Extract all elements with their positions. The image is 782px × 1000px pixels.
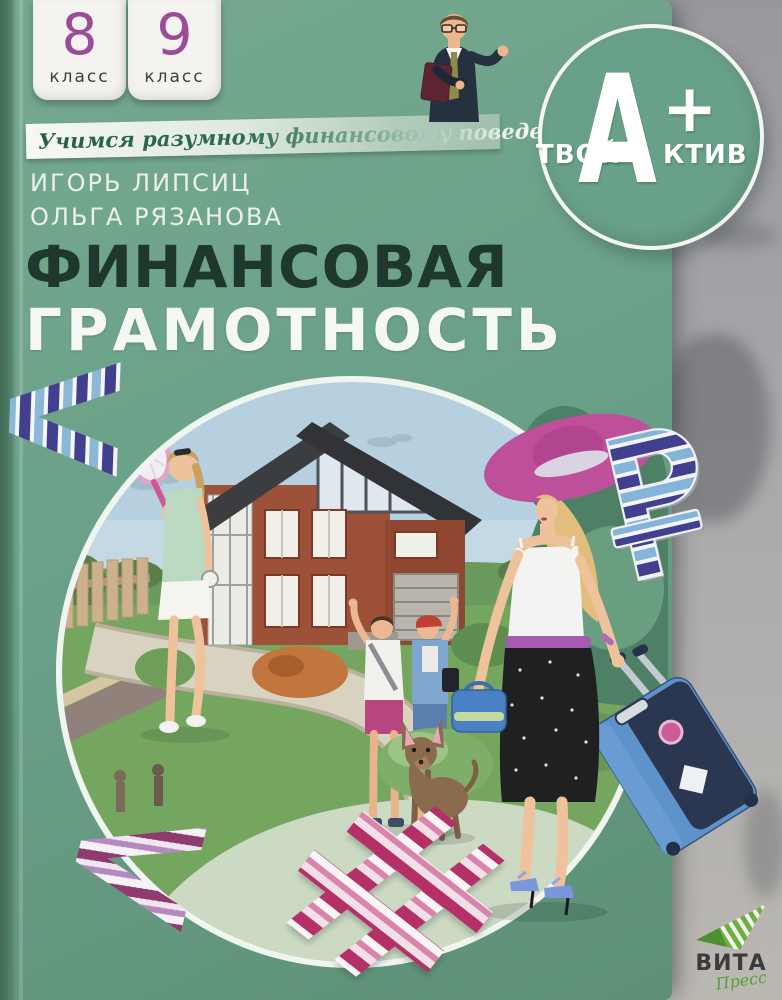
teacher-figure	[420, 14, 508, 122]
author-2: ОЛЬГА РЯЗАНОВА	[30, 200, 283, 234]
grade-tab-9: 9 класс	[128, 0, 221, 100]
grade-number: 8	[33, 4, 126, 66]
title-line-1: ФИНАНСОВАЯ	[25, 233, 509, 301]
book-cover-photo: 8 класс 9 класс Учимся разумному финансо…	[0, 0, 782, 1000]
grade-tab-8: 8 класс	[33, 0, 126, 100]
brand-letter-a: А	[578, 56, 657, 206]
brand-suffix: КТИВ	[663, 142, 748, 168]
grade-label: класс	[33, 67, 126, 87]
striped-v-mark: V	[0, 357, 130, 478]
spine-edge	[0, 0, 16, 1000]
brand-logo-circle: ТВОЙ А + КТИВ	[538, 24, 764, 250]
grade-label: класс	[128, 67, 221, 87]
hinge-highlight	[19, 0, 23, 1000]
title-line-2: ГРАМОТНОСТЬ	[25, 296, 564, 364]
grade-number: 9	[128, 4, 221, 66]
publisher-logo: ВИТА Пресс	[684, 896, 780, 998]
teacher-illustration	[393, 4, 515, 122]
publisher-leaf-icon	[696, 904, 766, 950]
author-1: ИГОРЬ ЛИПСИЦ	[30, 166, 283, 200]
authors-block: ИГОРЬ ЛИПСИЦ ОЛЬГА РЯЗАНОВА	[30, 166, 283, 234]
brand-plus: +	[662, 76, 717, 142]
